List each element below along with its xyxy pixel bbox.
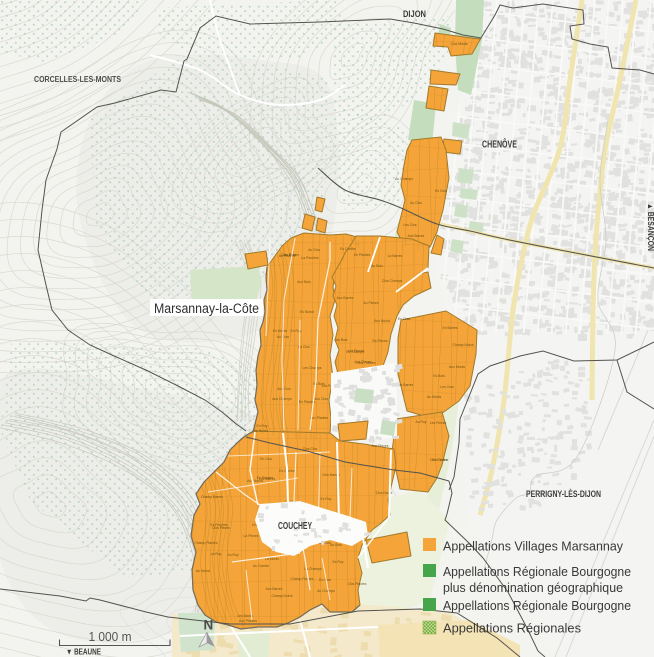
svg-text:CHENÔVE: CHENÔVE	[482, 138, 517, 151]
svg-text:En Barres: En Barres	[442, 326, 457, 330]
svg-text:En Cras: En Cras	[398, 317, 411, 321]
svg-text:Aux Barres: Aux Barres	[337, 296, 354, 300]
svg-text:DIJON: DIJON	[403, 9, 426, 20]
svg-text:plus dénomination géographique: plus dénomination géographique	[443, 580, 623, 595]
svg-text:Es Roy: Es Roy	[321, 497, 332, 501]
svg-text:Aux Monts: Aux Monts	[449, 365, 465, 369]
svg-text:En Monts: En Monts	[273, 329, 288, 333]
svg-text:Aux Clos: Aux Clos	[277, 387, 291, 391]
svg-text:Au Bois: Au Bois	[371, 264, 383, 268]
svg-text:Au Clos: Au Clos	[308, 248, 320, 252]
svg-text:Les Clos: Les Clos	[403, 223, 416, 227]
svg-text:PERRIGNY-LÈS-DIJON: PERRIGNY-LÈS-DIJON	[526, 489, 601, 499]
svg-text:La Roy: La Roy	[211, 552, 222, 556]
svg-text:Aux Bois: Aux Bois	[297, 280, 311, 284]
svg-text:Les Champs: Les Champs	[302, 366, 321, 370]
svg-text:Appellations Régionales: Appellations Régionales	[443, 621, 581, 636]
svg-text:Es Bois: Es Bois	[433, 374, 445, 378]
svg-text:En Clos: En Clos	[319, 578, 331, 582]
svg-text:Es Clos: Es Clos	[435, 189, 447, 193]
svg-text:Les Barres: Les Barres	[259, 477, 276, 481]
svg-text:Les Monts: Les Monts	[237, 614, 253, 618]
svg-text:Champ Barres: Champ Barres	[201, 495, 223, 499]
svg-text:Au Combe: Au Combe	[253, 564, 269, 568]
svg-text:Aux Plantes: Aux Plantes	[310, 416, 328, 420]
svg-text:Clos Plantes: Clos Plantes	[347, 582, 366, 586]
svg-text:En Pieces: En Pieces	[432, 458, 448, 462]
svg-text:Aux Champs: Aux Champs	[272, 397, 292, 401]
svg-text:1 000 m: 1 000 m	[89, 630, 132, 644]
svg-text:La Barres: La Barres	[388, 254, 403, 258]
svg-text:La Porches: La Porches	[301, 256, 318, 260]
svg-text:Champ Noirot: Champ Noirot	[272, 594, 293, 598]
svg-text:Au Roy: Au Roy	[227, 553, 238, 557]
svg-text:Es Noirot: Es Noirot	[300, 310, 314, 314]
svg-text:Au Monts: Au Monts	[427, 395, 442, 399]
svg-text:Au Champs: Au Champs	[317, 589, 335, 593]
svg-text:Aux Noirot: Aux Noirot	[374, 319, 390, 323]
svg-text:▼ BEAUNE: ▼ BEAUNE	[66, 648, 102, 657]
svg-text:Aux Plantes: Aux Plantes	[239, 619, 257, 623]
svg-text:Les Bois: Les Bois	[334, 338, 347, 342]
svg-text:Es Pieces: Es Pieces	[372, 339, 387, 343]
svg-text:Clos Champs: Clos Champs	[382, 279, 403, 283]
svg-text:Au Roy: Au Roy	[415, 420, 426, 424]
svg-text:Au Pieces: Au Pieces	[363, 301, 379, 305]
svg-text:La Pieces: La Pieces	[244, 534, 259, 538]
svg-text:En Plantes: En Plantes	[354, 253, 371, 257]
svg-text:Appellations Régionale Bourgog: Appellations Régionale Bourgogne	[443, 598, 631, 613]
svg-text:Aux Clos: Aux Clos	[314, 397, 328, 401]
svg-text:Au Clos: Au Clos	[410, 201, 422, 205]
svg-text:Au Noirot: Au Noirot	[196, 569, 210, 573]
svg-text:Les Pieces: Les Pieces	[348, 349, 365, 353]
svg-text:Es Roy: Es Roy	[333, 560, 344, 564]
svg-text:▲ BESANÇON: ▲ BESANÇON	[646, 203, 654, 251]
svg-text:Clos Plantes: Clos Plantes	[356, 361, 375, 365]
svg-text:Marsannay-la-Côte: Marsannay-la-Côte	[154, 301, 259, 316]
svg-text:COUCHEY: COUCHEY	[278, 521, 312, 532]
svg-text:Les Pieces: Les Pieces	[430, 421, 447, 425]
svg-text:Au Champs: Au Champs	[395, 177, 413, 181]
svg-text:Appellations Villages Marsanna: Appellations Villages Marsannay	[443, 539, 623, 554]
svg-text:Aux Pieces: Aux Pieces	[372, 444, 389, 448]
svg-text:Champ Plantes: Champ Plantes	[290, 577, 313, 581]
svg-text:Les Cras: Les Cras	[440, 385, 454, 389]
svg-text:Au Bois: Au Bois	[330, 543, 342, 547]
svg-text:Clos Monts: Clos Monts	[451, 42, 468, 46]
svg-text:Appellations Régionale Bourgog: Appellations Régionale Bourgogne	[443, 564, 631, 579]
svg-text:Clos Pieces: Clos Pieces	[212, 526, 230, 530]
svg-text:Aux Barres: Aux Barres	[408, 234, 425, 238]
svg-text:En Clos: En Clos	[260, 457, 272, 461]
svg-text:N: N	[204, 618, 214, 633]
svg-text:Aux Barres: Aux Barres	[266, 587, 283, 591]
svg-text:En Roy: En Roy	[256, 424, 267, 428]
svg-text:CORCELLES-LES-MONTS: CORCELLES-LES-MONTS	[34, 75, 122, 84]
svg-text:Es Combe: Es Combe	[340, 247, 356, 251]
svg-text:Au Plantes: Au Plantes	[279, 254, 296, 258]
svg-text:Champ Plantes: Champ Plantes	[194, 541, 217, 545]
svg-text:Champ Noirot: Champ Noirot	[453, 343, 474, 347]
